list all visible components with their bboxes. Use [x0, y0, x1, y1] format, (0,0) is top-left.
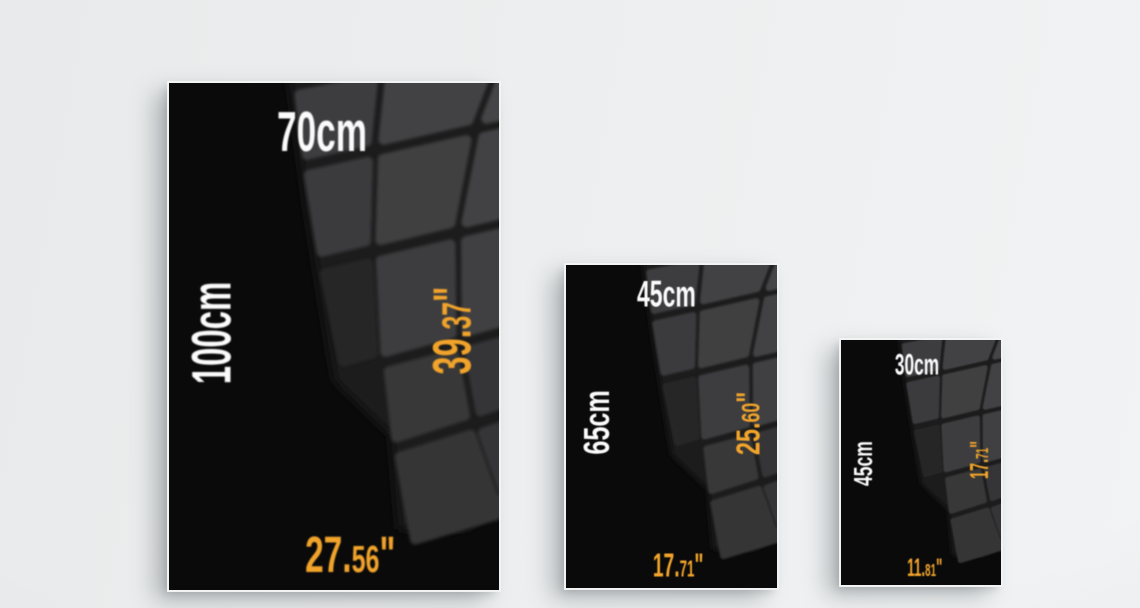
svg-text:45cm: 45cm: [849, 441, 878, 486]
svg-text:17.71": 17.71": [653, 546, 704, 584]
svg-text:11.81": 11.81": [907, 555, 942, 582]
svg-text:25.60": 25.60": [731, 392, 768, 455]
svg-text:100cm: 100cm: [181, 282, 243, 385]
svg-text:17.71": 17.71": [966, 441, 994, 479]
svg-text:39.37": 39.37": [423, 287, 482, 375]
svg-text:45cm: 45cm: [637, 274, 696, 315]
svg-text:27.56": 27.56": [305, 527, 395, 584]
svg-text:65cm: 65cm: [576, 390, 617, 454]
svg-text:70cm: 70cm: [277, 101, 367, 163]
svg-text:30cm: 30cm: [895, 349, 939, 382]
